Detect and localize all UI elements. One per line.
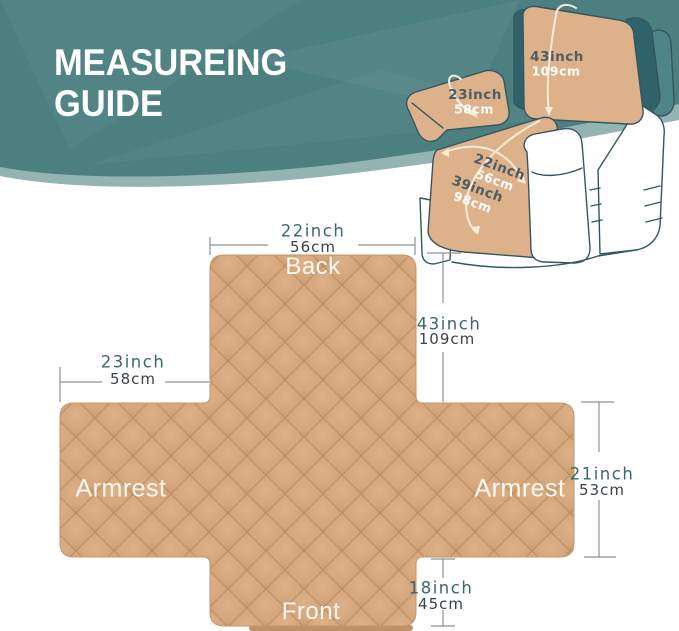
cover-armrest-left-label: Armrest [76,475,167,504]
chair-right-armrest [524,129,590,263]
cover-armrest-right-label: Armrest [475,475,566,504]
dim-armrest-width-inch: 23inch [101,353,166,372]
cover-back-label: Back [285,253,340,281]
dim-armrest-width-cm: 58cm [110,370,156,388]
chair-back-height-cm: 109cm [531,64,580,79]
chair-armrest-length-cm: 58cm [454,102,494,117]
dim-front-height-cm: 45cm [418,595,464,613]
cover-front-label: Front [282,598,341,626]
dim-back-height-cm: 109cm [419,330,476,348]
cover-cross-shape [60,255,574,626]
page-title-line2: GUIDE [54,83,287,124]
measuring-guide-infographic: MEASUREING GUIDE 43inch 109cm 23inch 58c… [0,0,679,631]
dim-top-width-cm: 56cm [290,238,336,256]
page-title-line1: MEASUREING [54,42,287,83]
page-title: MEASUREING GUIDE [54,42,305,124]
dim-armrest-height-cm: 53cm [579,481,625,499]
